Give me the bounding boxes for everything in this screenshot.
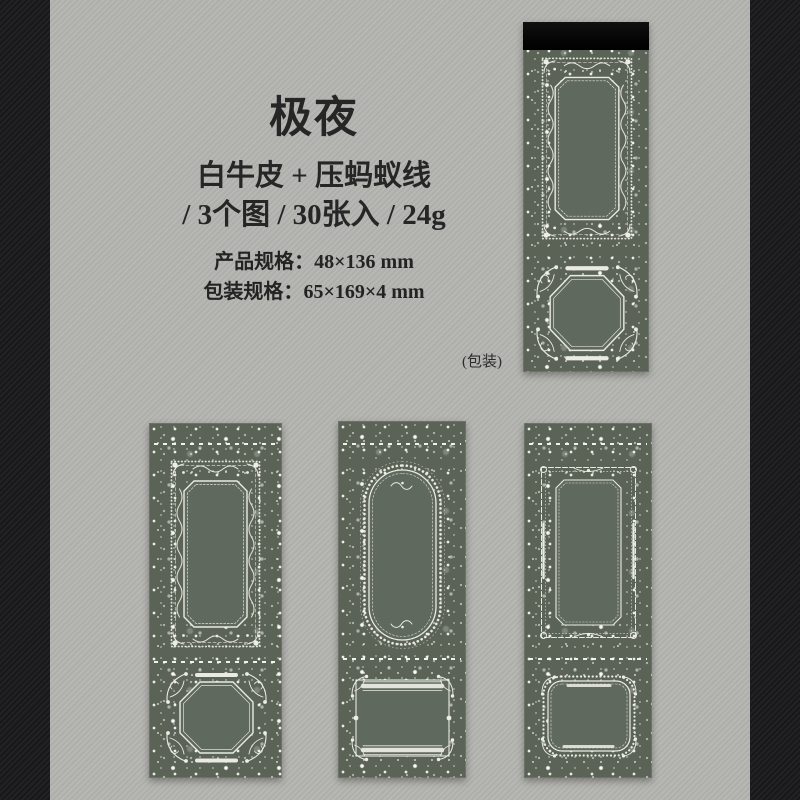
perforation-line bbox=[529, 658, 647, 660]
quantity-line: / 3个图 / 30张入 / 24g bbox=[114, 200, 514, 232]
ornate-octagon-frame-icon bbox=[534, 263, 640, 363]
ornate-chamfer-frame-icon bbox=[169, 459, 262, 649]
memo-pad-design-2 bbox=[338, 421, 466, 778]
packaged-pad-photo bbox=[523, 22, 649, 372]
package-spec-line: 包装规格：65×169×4 mm bbox=[114, 280, 514, 304]
lace-rect-frame-icon bbox=[349, 673, 456, 763]
right-border-bar bbox=[750, 0, 800, 800]
package-caption: (包装) bbox=[462, 350, 502, 371]
spec-value: 65×169×4 mm bbox=[303, 281, 424, 303]
left-border-bar bbox=[0, 0, 50, 800]
perforation-line bbox=[154, 443, 277, 445]
ornate-octagon-frame-icon bbox=[164, 670, 269, 765]
rounded-frame-icon bbox=[538, 673, 640, 760]
spec-label: 包装规格： bbox=[203, 281, 303, 303]
memo-pad-design-3 bbox=[524, 423, 652, 778]
product-showcase-image: 极夜 白牛皮 + 压蚂蚁线 / 3个图 / 30张入 / 24g 产品规格：48… bbox=[0, 0, 800, 800]
spec-value: 48×136 mm bbox=[314, 251, 414, 273]
material-line: 白牛皮 + 压蚂蚁线 bbox=[114, 161, 514, 193]
ornate-rect-frame-icon bbox=[536, 462, 641, 643]
perforation-line bbox=[343, 443, 461, 445]
perforation-line bbox=[343, 658, 461, 660]
ornate-oval-frame-icon bbox=[350, 459, 455, 651]
spec-label: 产品规格： bbox=[214, 251, 314, 273]
memo-pad-design-1 bbox=[149, 423, 282, 778]
product-info: 极夜 白牛皮 + 压蚂蚁线 / 3个图 / 30张入 / 24g 产品规格：48… bbox=[114, 96, 514, 310]
product-spec-line: 产品规格：48×136 mm bbox=[114, 250, 514, 274]
binding-tape bbox=[523, 22, 649, 50]
product-title: 极夜 bbox=[114, 96, 514, 141]
perforation-line bbox=[529, 443, 647, 445]
ornate-chamfer-frame-icon bbox=[540, 56, 634, 241]
perforation-line bbox=[154, 661, 277, 663]
